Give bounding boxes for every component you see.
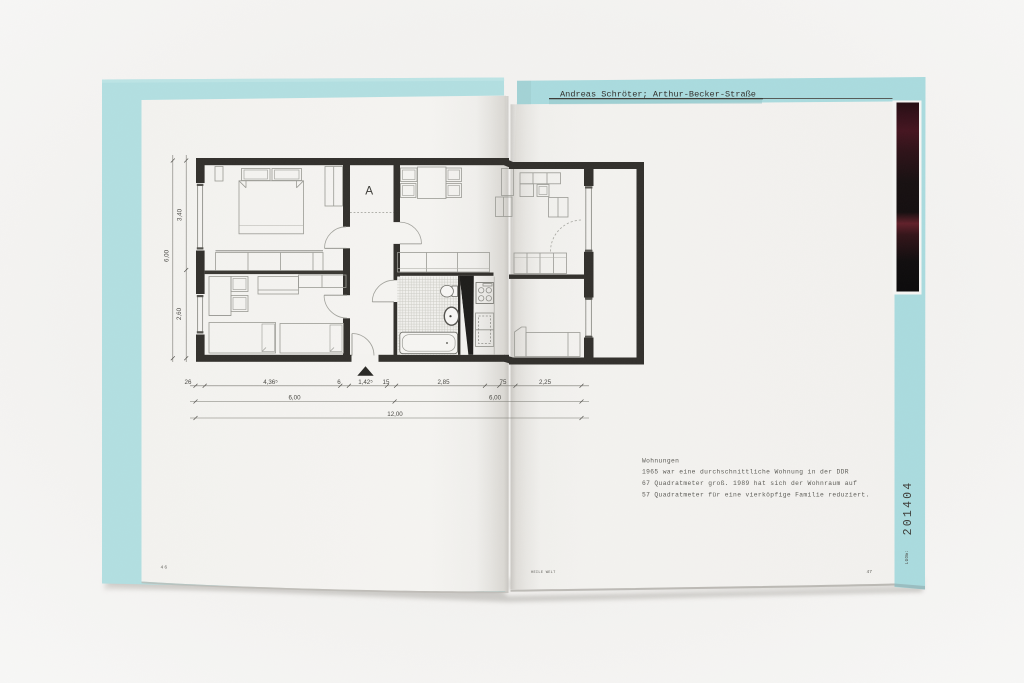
svg-text:3,40: 3,40 — [177, 208, 184, 221]
svg-text:2,25: 2,25 — [539, 379, 552, 386]
svg-text:201404: 201404 — [902, 481, 915, 536]
svg-text:57 Quadratmeter für eine vierk: 57 Quadratmeter für eine vierköpfige Fam… — [642, 491, 870, 498]
svg-text:6: 6 — [337, 379, 341, 386]
svg-text:4,36⁵: 4,36⁵ — [263, 379, 278, 386]
svg-text:15: 15 — [383, 379, 390, 386]
svg-text:HEILE WELT: HEILE WELT — [531, 571, 556, 575]
svg-text:46: 46 — [161, 565, 169, 571]
svg-text:2,85: 2,85 — [437, 379, 450, 386]
svg-text:67 Quadratmeter groß. 1989 hat: 67 Quadratmeter groß. 1989 hat sich der … — [642, 480, 857, 487]
svg-text:75: 75 — [500, 379, 507, 386]
svg-text:6,00: 6,00 — [489, 395, 502, 402]
svg-text:6,00: 6,00 — [164, 249, 171, 262]
svg-text:6,00: 6,00 — [288, 395, 301, 402]
svg-text:LGO№:: LGO№: — [905, 550, 910, 565]
svg-text:1,42⁵: 1,42⁵ — [358, 379, 373, 386]
svg-text:Andreas Schröter; Arthur-Becke: Andreas Schröter; Arthur-Becker-Straße — [560, 89, 756, 99]
svg-text:1965 war eine durchschnittlich: 1965 war eine durchschnittliche Wohnung … — [642, 469, 849, 476]
svg-text:2,60: 2,60 — [176, 307, 183, 320]
svg-text:A: A — [365, 183, 373, 197]
svg-text:26: 26 — [185, 379, 192, 386]
svg-text:47: 47 — [867, 569, 873, 575]
svg-text:Wohnungen: Wohnungen — [642, 458, 679, 465]
svg-text:12,00: 12,00 — [387, 411, 403, 418]
